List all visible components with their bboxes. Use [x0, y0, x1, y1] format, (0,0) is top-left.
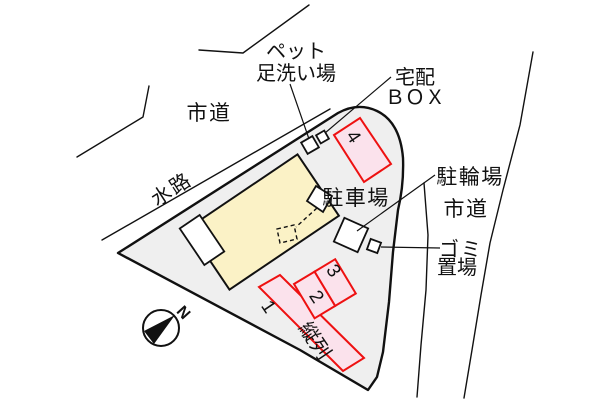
parking-lot-label: 駐車場 — [322, 187, 390, 210]
delivery-box-label-line1: 宅配 — [395, 66, 435, 89]
delivery-box-label-line2: ＢＯＸ — [385, 87, 445, 109]
pet-wash-label-line1: ペット — [266, 41, 326, 63]
road-edge-right-inner — [417, 183, 428, 397]
site-plan-diagram: N 市道 ペット 足洗い場 宅配 ＢＯＸ 駐車場 駐輪場 市道 ゴミ 置場 水路… — [0, 0, 600, 400]
garbage-label-line2: 置場 — [437, 256, 477, 279]
pet-wash-label-line2: 足洗い場 — [256, 62, 336, 85]
road-top-label: 市道 — [187, 102, 232, 125]
site-plan-svg: N 市道 ペット 足洗い場 宅配 ＢＯＸ 駐車場 駐輪場 市道 ゴミ 置場 水路… — [0, 0, 600, 400]
waterway-label: 水路 — [147, 168, 196, 211]
road-edge-left — [77, 86, 149, 157]
road-edge-right-outer — [464, 52, 533, 398]
garbage-area-marker — [367, 239, 381, 253]
bicycle-parking-label: 駐輪場 — [436, 166, 504, 189]
road-right-label: 市道 — [444, 198, 489, 221]
north-compass-icon: N — [143, 303, 193, 346]
